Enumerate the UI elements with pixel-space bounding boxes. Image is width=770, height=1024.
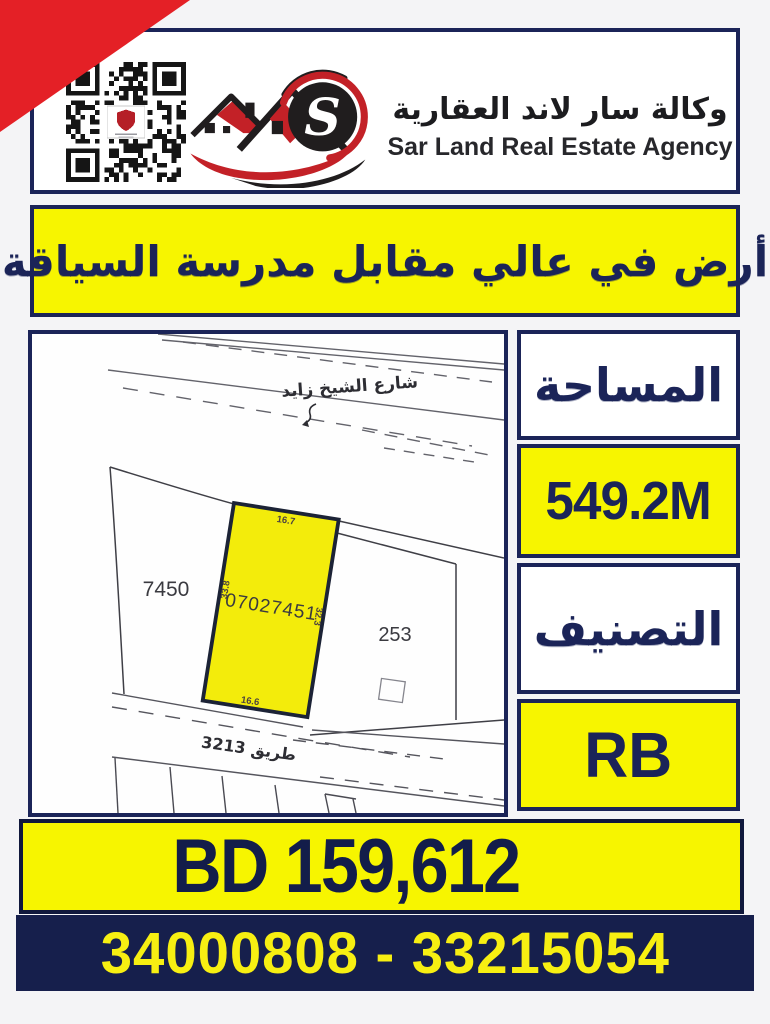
area-value-box: 549.2M [517,444,740,558]
street-top-label: شارع الشيخ زايد [281,372,419,401]
brand-name-english: Sar Land Real Estate Agency [384,133,736,162]
cadastral-map-graphic: شارع الشيخ زايد [32,334,504,813]
agency-logo-icon: S [182,64,386,188]
neighbor-plot-left: 7450 [143,578,190,601]
brand-name-arabic: وكالة سار لاند العقارية [384,90,736,131]
neighbor-plot-right: 253 [378,624,411,646]
price-banner: BD 159,612 [19,819,744,914]
area-label-box: المساحة [517,330,740,440]
brand-block: وكالة سار لاند العقارية Sar Land Real Es… [384,66,736,186]
price-value: BD 159,612 [172,823,519,910]
poster-root: S وكالة سار لاند العقارية Sar Land Real … [0,0,770,1024]
classification-label-box: التصنيف [517,563,740,694]
qr-code [66,62,186,182]
road-bottom-label: طريق 3213 [200,732,297,764]
listing-title: أرض في عالي مقابل مدرسة السياقة [2,237,768,286]
header-panel: S وكالة سار لاند العقارية Sar Land Real … [30,28,740,194]
plot-map: شارع الشيخ زايد [28,330,508,817]
svg-text:S: S [304,87,341,147]
area-label: المساحة [534,358,723,412]
classification-value: RB [585,718,673,792]
phone-banner: 34000808 - 33215054 [16,915,754,991]
title-banner: أرض في عالي مقابل مدرسة السياقة [30,205,740,317]
qr-code-graphic [66,62,186,182]
area-value: 549.2M [546,470,711,532]
classification-label: التصنيف [534,602,723,656]
classification-value-box: RB [517,699,740,811]
phone-numbers: 34000808 - 33215054 [100,920,669,987]
building-footprint [379,678,406,702]
